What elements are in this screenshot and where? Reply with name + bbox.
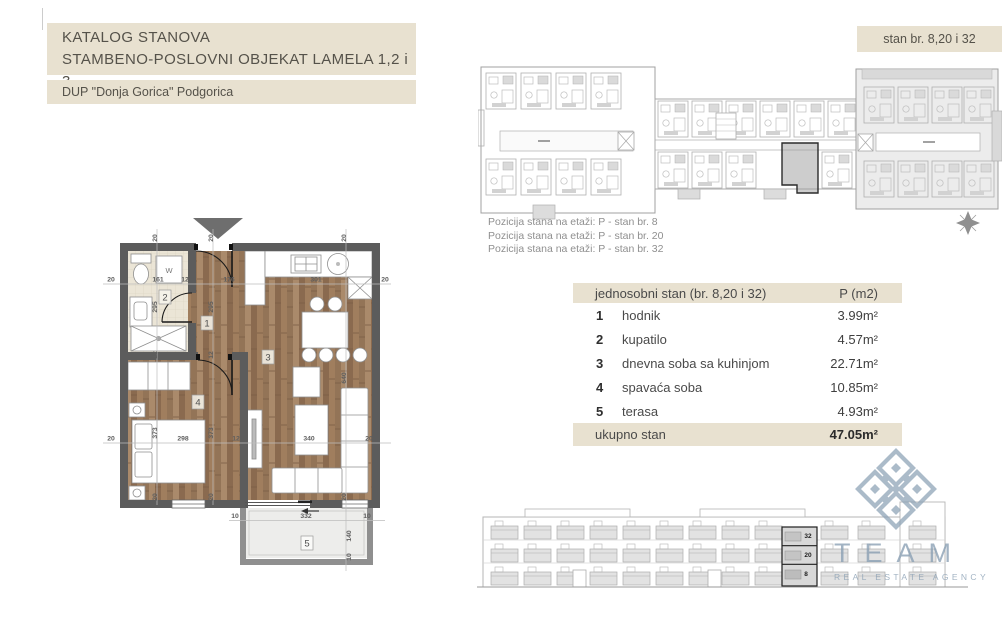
title-line-1: KATALOG STANOVA [62, 27, 416, 49]
row-num: 1 [573, 308, 622, 323]
agency-tagline: REAL ESTATE AGENCY [834, 572, 989, 582]
table-row: 5 terasa 4.93m² [573, 399, 902, 423]
compass-icon [956, 211, 980, 235]
entrance-door [708, 570, 721, 587]
position-line-1: Pozicija stana na etaži: P - stan br. 8 [488, 216, 748, 230]
svg-text:20: 20 [341, 234, 348, 242]
svg-text:12: 12 [152, 351, 159, 359]
row-num: 5 [573, 404, 622, 419]
svg-text:20: 20 [208, 493, 215, 501]
toilet [131, 254, 151, 263]
row-area: 3.99m² [778, 308, 902, 323]
agency-name: TEAM [834, 538, 965, 568]
room-label-spavaca: 4 [195, 398, 200, 409]
room-label-kupatilo: 2 [162, 293, 167, 304]
row-area: 4.93m² [778, 404, 902, 419]
row-name: kupatilo [622, 332, 778, 347]
page-edge-mark [42, 8, 43, 30]
svg-text:640: 640 [341, 372, 348, 384]
svg-text:12: 12 [232, 436, 240, 443]
svg-text:301: 301 [310, 277, 322, 284]
row-area: 22.71m² [778, 356, 902, 371]
wardrobe [128, 362, 190, 390]
svg-text:20: 20 [152, 234, 159, 242]
row-name: terasa [622, 404, 778, 419]
row-num: 4 [573, 380, 622, 395]
unit-label-20: 20 [804, 552, 812, 559]
position-line-3: Pozicija stana na etaži: P - stan br. 32 [488, 243, 748, 257]
svg-text:20: 20 [107, 436, 115, 443]
svg-text:10: 10 [363, 513, 371, 520]
row-area: 10.85m² [778, 380, 902, 395]
corner-cabinet [348, 277, 372, 299]
room-label-hodnik: 1 [204, 319, 209, 330]
page-subtitle: DUP "Donja Gorica" Podgorica [47, 80, 416, 104]
row-num: 2 [573, 332, 622, 347]
position-line-2: Pozicija stana na etaži: P - stan br. 20 [488, 230, 748, 244]
svg-text:332: 332 [300, 513, 312, 520]
svg-text:340: 340 [303, 436, 315, 443]
stan-badge: stan br. 8,20 i 32 [857, 26, 1002, 52]
svg-text:295: 295 [152, 301, 159, 313]
site-plan [478, 55, 1002, 235]
svg-text:20: 20 [381, 277, 389, 284]
svg-text:20: 20 [152, 493, 159, 501]
table-row: 4 spavaća soba 10.85m² [573, 375, 902, 399]
coffee-table [295, 405, 328, 455]
agency-logo-icon [858, 451, 934, 527]
table-header-row: jednosobni stan (br. 8,20 i 32) P (m2) [573, 283, 902, 303]
table-header-area: P (m2) [788, 286, 902, 301]
site-central-band [655, 99, 858, 199]
entrance-arrow-icon [193, 218, 243, 239]
svg-text:373: 373 [152, 427, 159, 439]
svg-text:10: 10 [346, 553, 353, 561]
table-total-row: ukupno stan 47.05m² [573, 423, 902, 446]
position-info: Pozicija stana na etaži: P - stan br. 8 … [488, 216, 748, 257]
row-name: dnevna soba sa kuhinjom [622, 356, 778, 371]
unit-label-32: 32 [804, 533, 812, 540]
row-name: spavaća soba [622, 380, 778, 395]
bed [132, 420, 205, 483]
area-table: jednosobni stan (br. 8,20 i 32) P (m2) 1… [573, 283, 902, 446]
total-name: ukupno stan [573, 427, 768, 442]
washer-label: W [165, 266, 173, 275]
fridge [245, 251, 265, 305]
unit-label-8: 8 [804, 571, 808, 578]
svg-text:161: 161 [152, 277, 164, 284]
tv [252, 419, 256, 459]
svg-text:20: 20 [341, 493, 348, 501]
shower [131, 326, 186, 351]
svg-text:20: 20 [365, 436, 373, 443]
highlighted-unit [782, 143, 818, 193]
row-area: 4.57m² [778, 332, 902, 347]
svg-text:373: 373 [208, 427, 215, 439]
svg-text:140: 140 [346, 530, 353, 542]
room-label-dnevna: 3 [265, 353, 270, 364]
highlighted-unit-stack: 32 20 8 [782, 527, 817, 586]
svg-text:12: 12 [208, 351, 215, 359]
catalog-page: KATALOG STANOVA STAMBENO-POSLOVNI OBJEKA… [0, 0, 1007, 626]
site-right-wing [856, 69, 1002, 209]
table-header-name: jednosobni stan (br. 8,20 i 32) [573, 286, 788, 301]
svg-text:20: 20 [107, 277, 115, 284]
table-row: 1 hodnik 3.99m² [573, 303, 902, 327]
dining-table [302, 312, 348, 348]
room-label-terasa: 5 [304, 539, 309, 550]
svg-text:176: 176 [223, 277, 235, 284]
site-left-wing [478, 67, 655, 219]
table-row: 3 dnevna soba sa kuhinjom 22.71m² [573, 351, 902, 375]
svg-text:20: 20 [208, 234, 215, 242]
page-title: KATALOG STANOVA STAMBENO-POSLOVNI OBJEKA… [47, 23, 416, 75]
floor-plan: W [95, 205, 405, 585]
row-name: hodnik [622, 308, 778, 323]
agency-watermark: TEAM REAL ESTATE AGENCY [826, 444, 996, 594]
row-num: 3 [573, 356, 622, 371]
total-area: 47.05m² [768, 427, 902, 442]
svg-text:10: 10 [231, 513, 239, 520]
entrance-door [573, 570, 586, 587]
side-table [293, 367, 320, 397]
table-row: 2 kupatilo 4.57m² [573, 327, 902, 351]
svg-text:12: 12 [181, 277, 189, 284]
svg-text:298: 298 [177, 436, 189, 443]
svg-text:295: 295 [208, 301, 215, 313]
